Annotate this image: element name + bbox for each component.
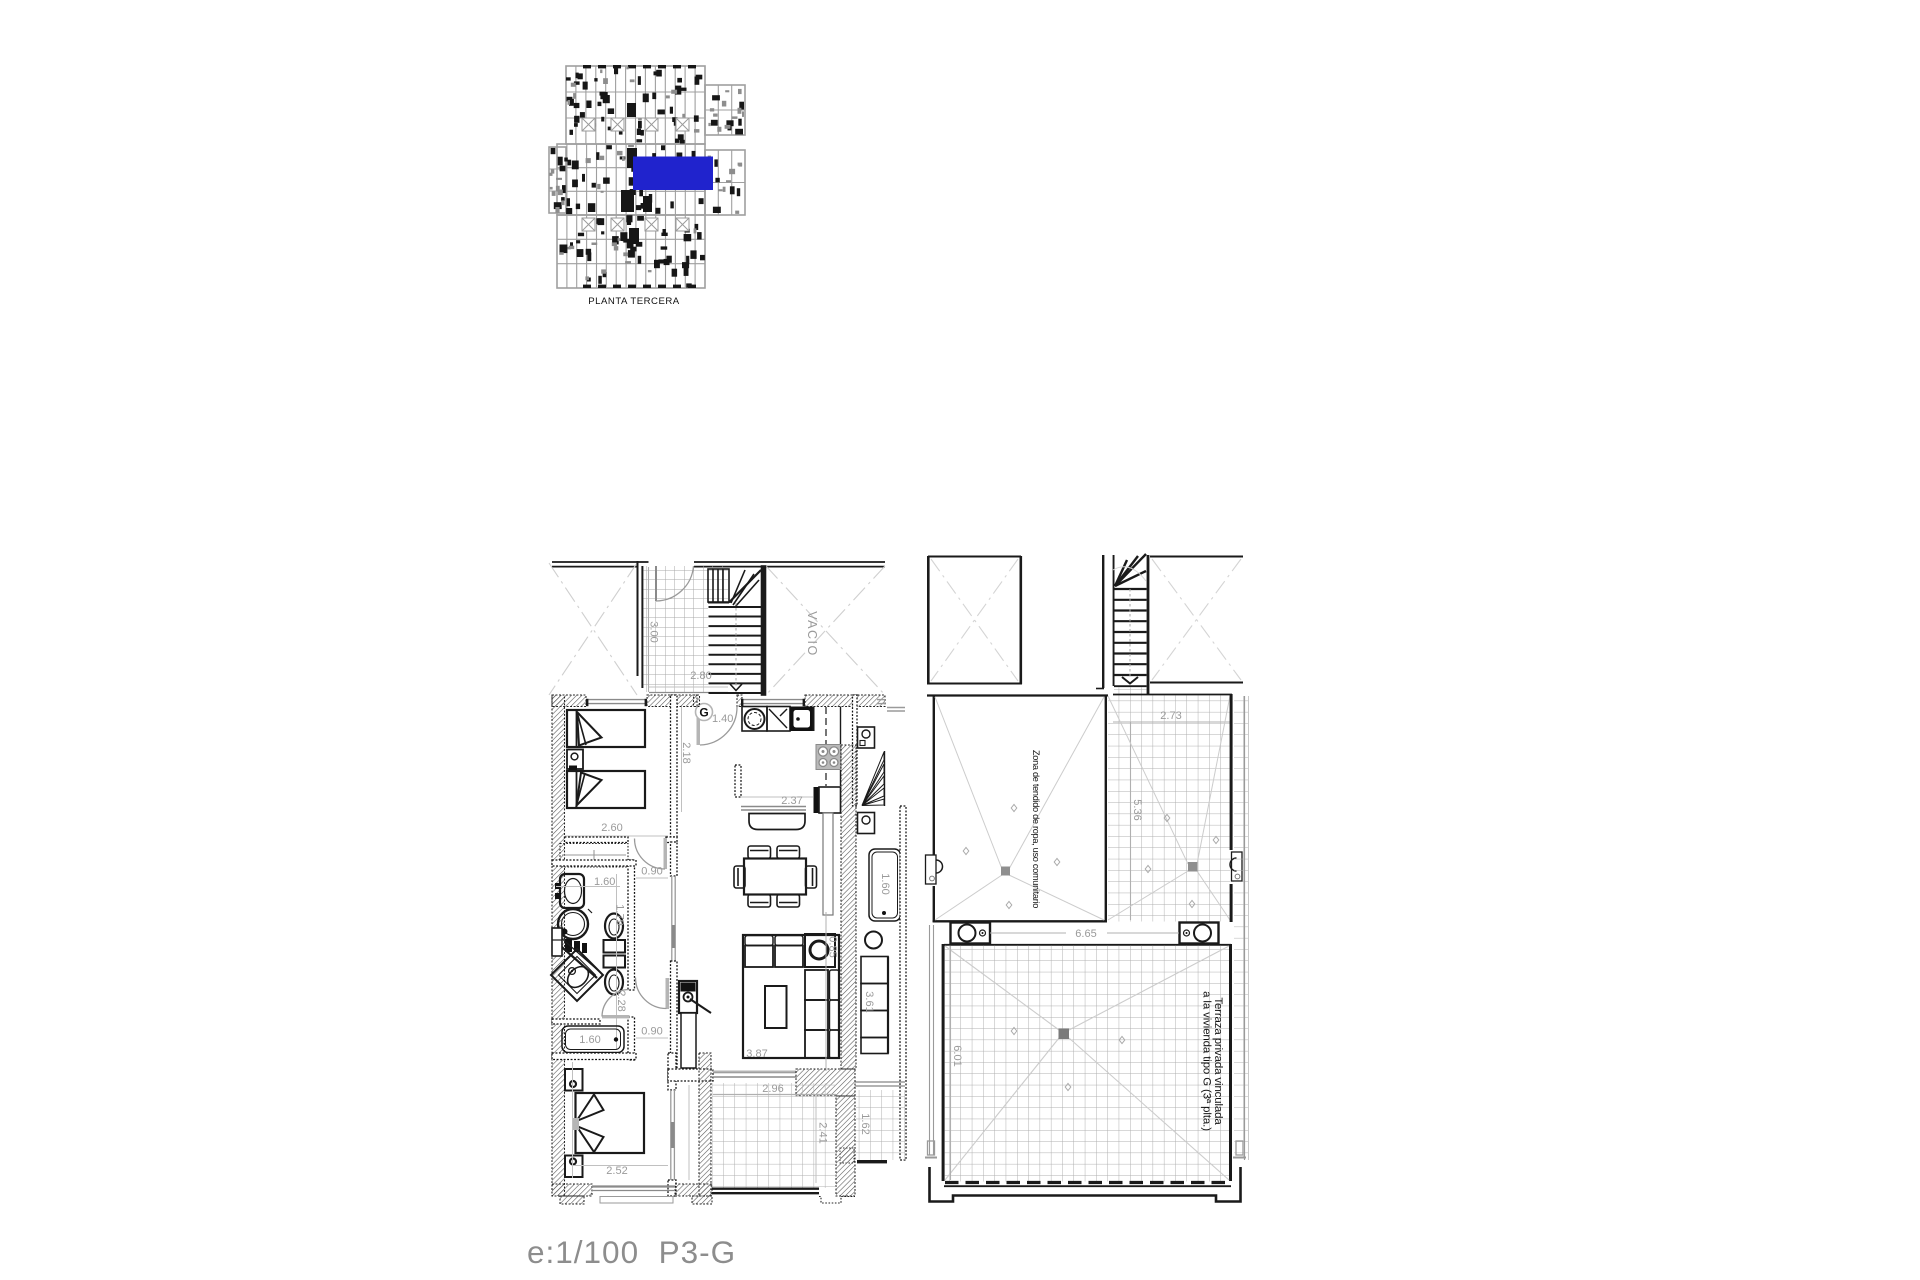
svg-text:2.28: 2.28 (615, 990, 627, 1011)
svg-text:e:1/100 P3-G: e:1/100 P3-G (527, 1234, 736, 1270)
svg-text:2.60: 2.60 (601, 822, 622, 834)
svg-text:1.60: 1.60 (579, 1034, 600, 1046)
svg-text:Zona de tendido de ropa, uso c: Zona de tendido de ropa, uso comunitario (1031, 750, 1041, 908)
svg-text:3.61: 3.61 (863, 991, 875, 1012)
svg-text:2.52: 2.52 (606, 1165, 627, 1177)
svg-text:1.62: 1.62 (859, 1113, 871, 1134)
svg-text:3.87: 3.87 (746, 1048, 767, 1060)
svg-text:2.80: 2.80 (690, 670, 711, 682)
svg-text:Terraza privada vinculada: Terraza privada vinculada (1212, 997, 1224, 1125)
svg-text:1.79: 1.79 (614, 904, 626, 925)
svg-text:VACIO: VACIO (805, 611, 819, 656)
svg-text:6.65: 6.65 (1075, 928, 1096, 940)
svg-text:1.60: 1.60 (879, 873, 891, 894)
svg-text:PLANTA TERCERA: PLANTA TERCERA (588, 296, 680, 307)
svg-text:0.85: 0.85 (827, 936, 839, 957)
svg-text:1.40: 1.40 (712, 713, 733, 725)
svg-text:2.41: 2.41 (817, 1122, 829, 1143)
svg-text:G: G (699, 706, 708, 720)
svg-text:3.00: 3.00 (648, 621, 660, 642)
svg-text:2.37: 2.37 (781, 795, 802, 807)
svg-text:0.90: 0.90 (641, 1026, 662, 1038)
svg-text:2.73: 2.73 (1160, 710, 1181, 722)
svg-text:6.01: 6.01 (951, 1045, 963, 1066)
svg-text:2.18: 2.18 (680, 742, 692, 763)
svg-text:5.36: 5.36 (1131, 799, 1143, 820)
svg-text:0.90: 0.90 (641, 866, 662, 878)
svg-text:2.96: 2.96 (762, 1083, 783, 1095)
svg-text:a la vivienda tipo G (3ª plta.: a la vivienda tipo G (3ª plta.) (1201, 991, 1213, 1131)
